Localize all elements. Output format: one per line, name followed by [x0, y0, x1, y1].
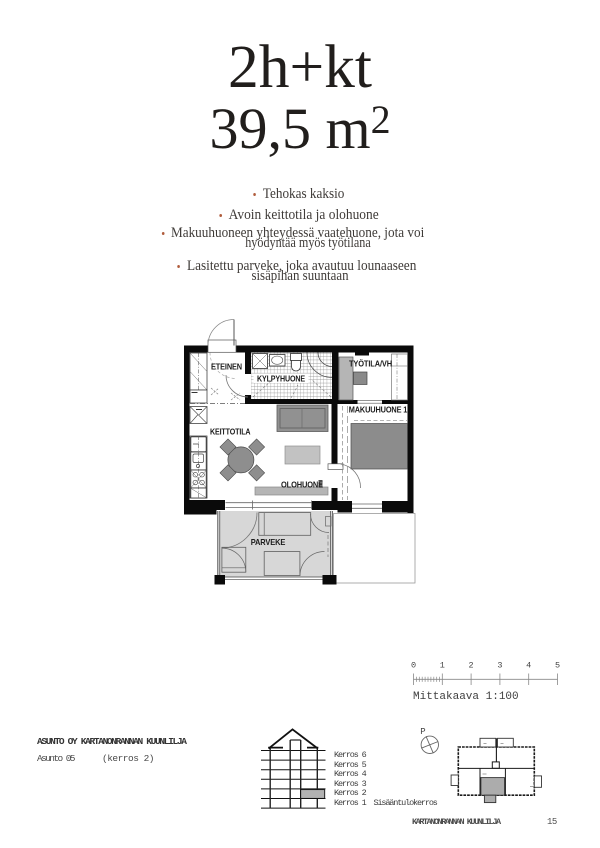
svg-text:4: 4 — [526, 661, 531, 671]
svg-text:KEITTOTILA: KEITTOTILA — [210, 428, 251, 437]
svg-text:PARVEKE: PARVEKE — [251, 538, 286, 547]
svg-text:2: 2 — [469, 661, 474, 671]
svg-text:MAKUUHUONE 1: MAKUUHUONE 1 — [349, 406, 408, 415]
svg-text:ETEINEN: ETEINEN — [211, 363, 242, 372]
svg-text:P: P — [420, 727, 425, 737]
svg-text:3: 3 — [497, 661, 502, 671]
svg-text:KYLPYHUONE: KYLPYHUONE — [257, 375, 306, 384]
svg-text:5: 5 — [555, 661, 560, 671]
svg-text:0: 0 — [411, 661, 416, 671]
svg-text:Mittakaava 1:100: Mittakaava 1:100 — [413, 691, 519, 703]
svg-text:1: 1 — [440, 661, 445, 671]
svg-text:OLOHUONE: OLOHUONE — [281, 481, 324, 490]
svg-text:TYÖTILA/VH: TYÖTILA/VH — [349, 359, 392, 369]
